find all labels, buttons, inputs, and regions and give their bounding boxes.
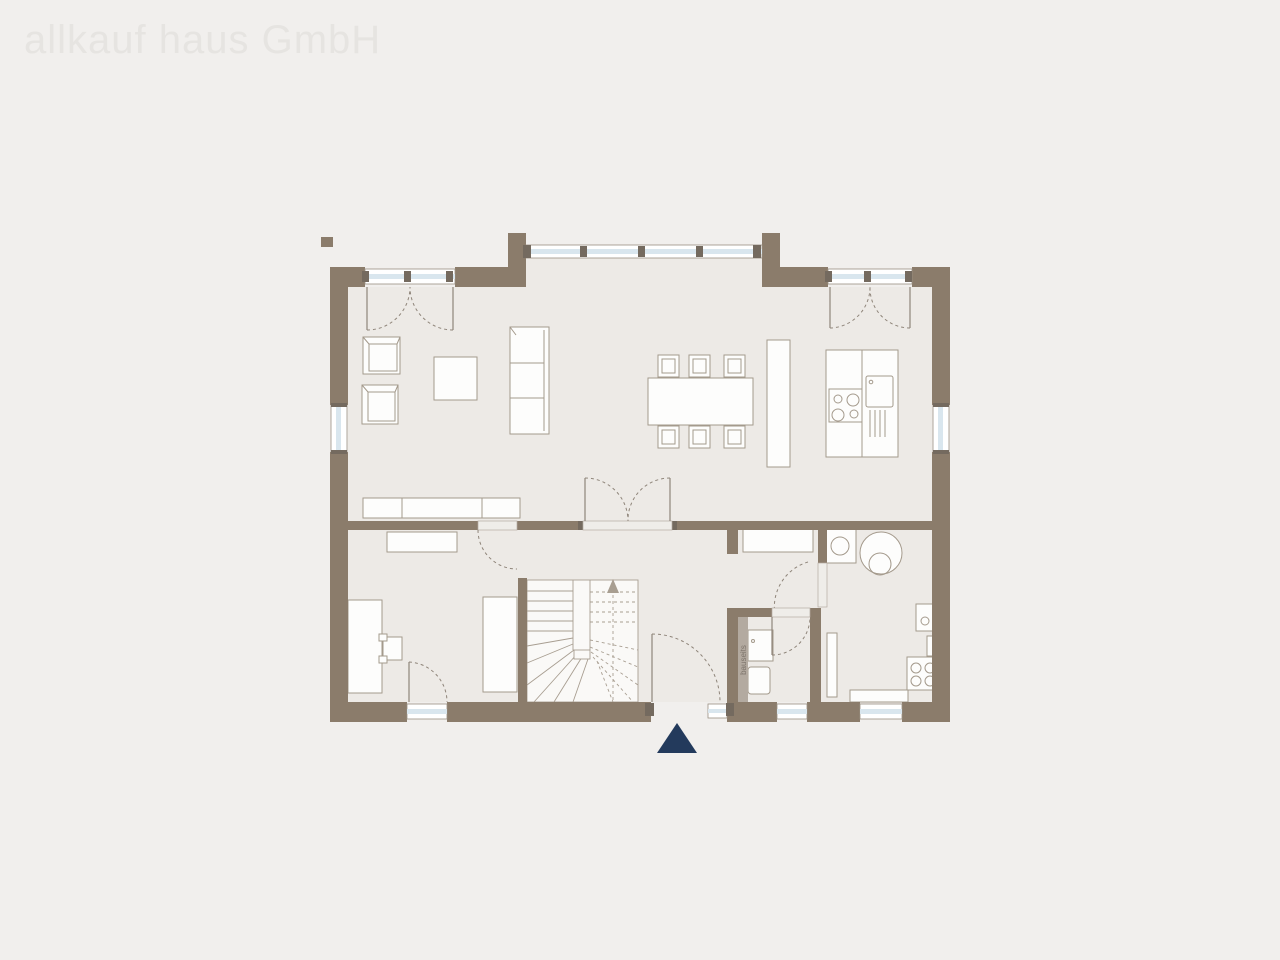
tall-cabinet: [767, 340, 790, 467]
toilet: [748, 667, 770, 694]
bottom-window: [860, 704, 902, 719]
corner-post: [321, 237, 333, 247]
lowboard: [363, 498, 520, 518]
hall-nook-stub: [727, 530, 738, 554]
left-window: [331, 403, 347, 454]
floor-plan-page: allkauf haus GmbH: [0, 0, 1280, 960]
kitchen-island: [826, 350, 898, 457]
utility-counter: [850, 690, 908, 702]
wc-sink: [748, 630, 773, 661]
coffee-table: [434, 357, 477, 400]
floor-area: [348, 257, 932, 702]
desk: [348, 600, 382, 693]
staircase: [527, 579, 638, 702]
narrow-cabinet: [827, 633, 837, 697]
wardrobe-cabinet: [483, 597, 517, 692]
bauseits-label: bauseits: [739, 645, 748, 675]
right-window: [933, 403, 949, 454]
boiler-tank: [860, 532, 902, 575]
entrance-threshold: [645, 703, 734, 718]
stair-wall: [518, 578, 527, 702]
sofa: [510, 327, 549, 434]
hall-sideboard: [743, 528, 813, 552]
armchair: [362, 385, 398, 424]
dining-table: [648, 378, 753, 425]
utility-stub: [818, 530, 827, 563]
entrance-triangle-marker: [657, 723, 697, 753]
armchair: [363, 337, 400, 374]
office-patio-door-glazing: [407, 704, 447, 719]
terrace-door-right-glazing: [825, 269, 912, 284]
washing-machine: [825, 529, 856, 563]
panorama-window: [523, 245, 762, 258]
floor-plan-drawing: bauseits: [0, 0, 1280, 960]
bottom-window: [777, 704, 807, 719]
terrace-door-left-glazing: [362, 269, 455, 284]
sideboard: [387, 532, 457, 552]
